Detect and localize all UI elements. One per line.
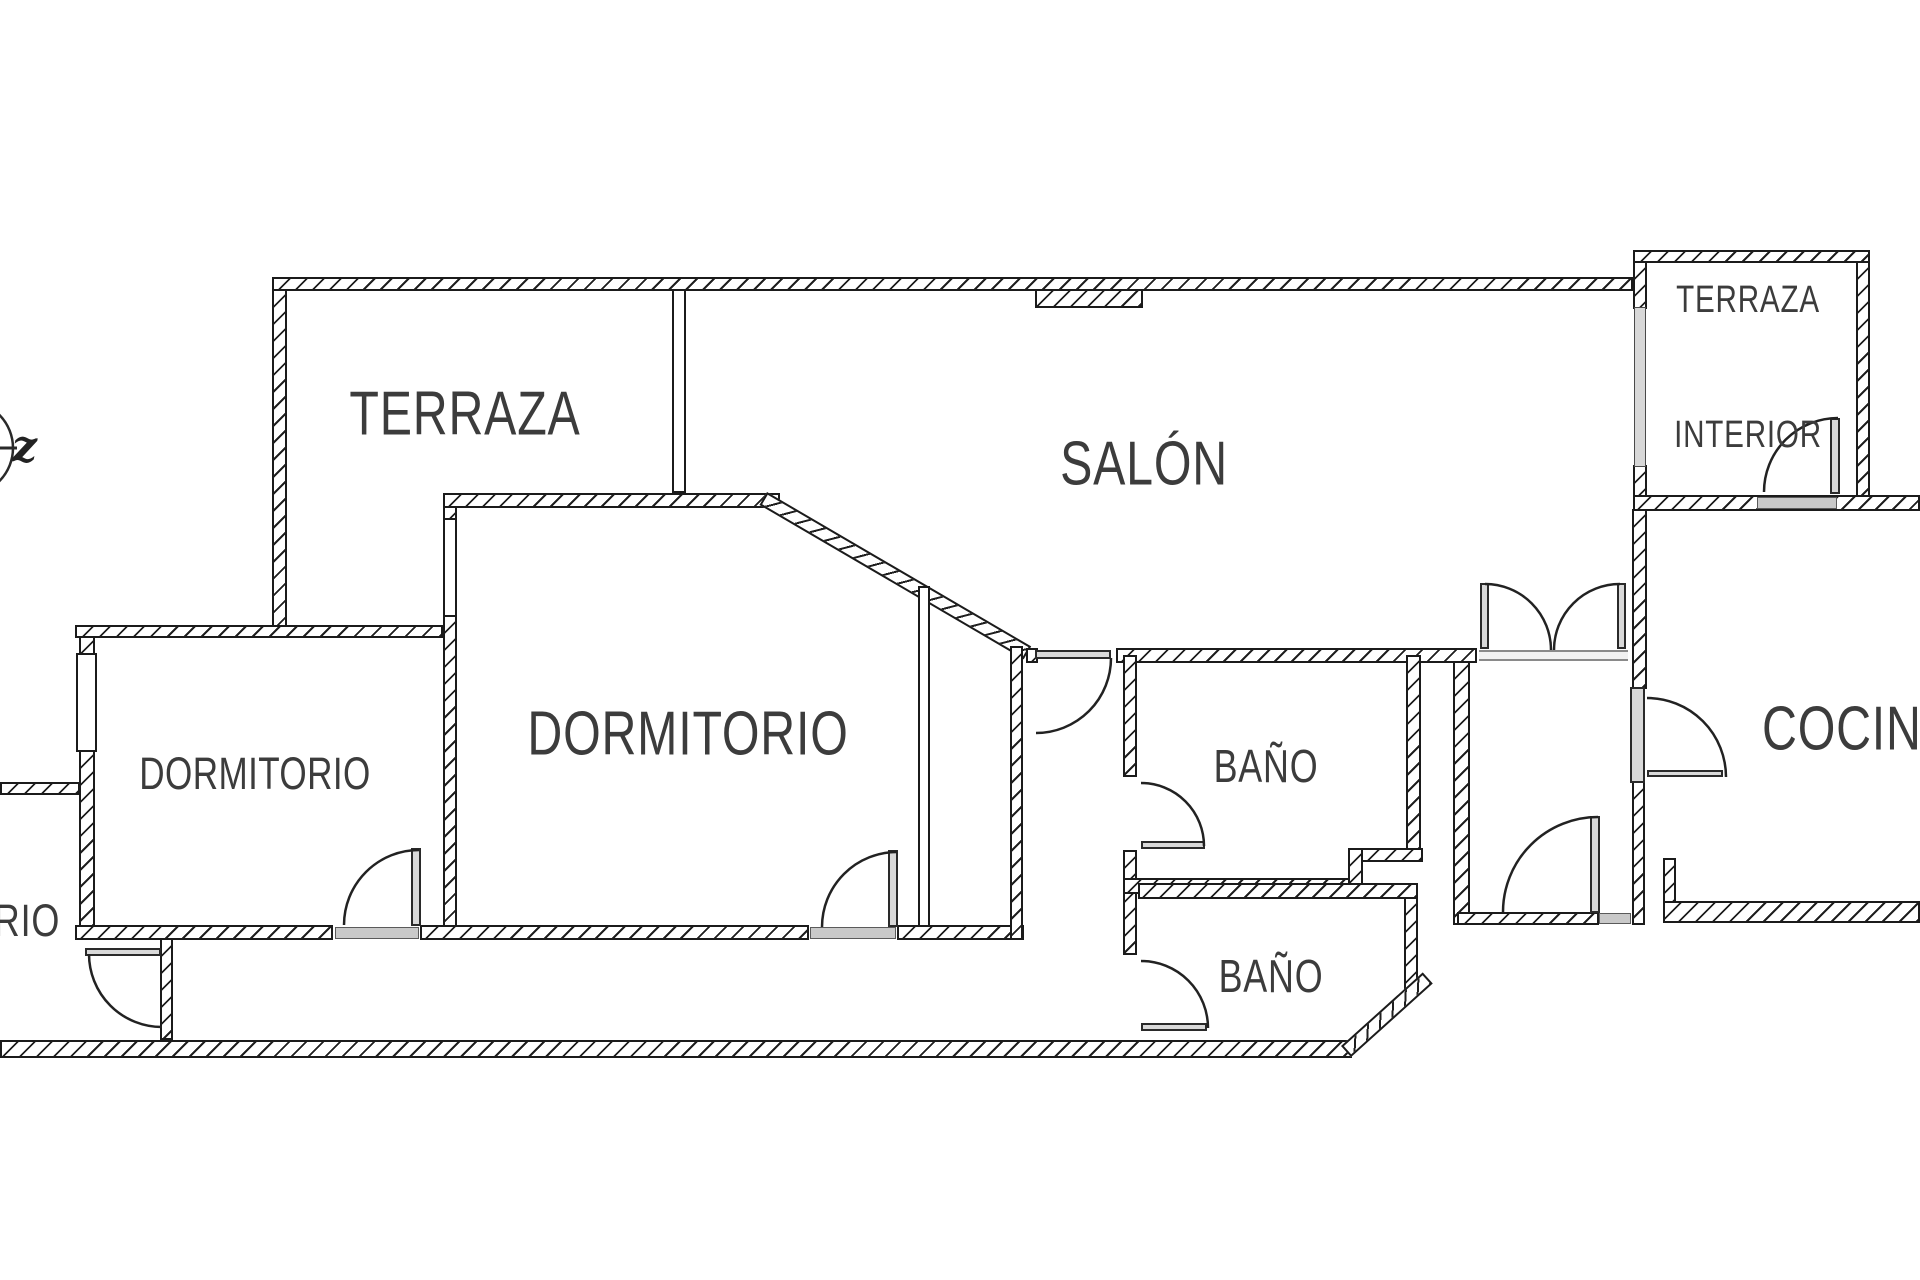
room-label-bano2: BAÑO bbox=[1219, 949, 1324, 1003]
door-arc-dormitorio-principal bbox=[822, 852, 897, 927]
compass-axis-label: z bbox=[12, 422, 38, 473]
door-swing-arcs bbox=[0, 0, 1920, 1280]
door-arc-entrada bbox=[1503, 817, 1598, 912]
door-arc-dormitorio2 bbox=[344, 850, 419, 925]
room-label-terraza-interior: TERRAZA INTERIOR bbox=[1674, 188, 1822, 548]
door-arc-bano2 bbox=[1141, 961, 1208, 1028]
room-label-terraza-interior-line1: TERRAZA bbox=[1674, 278, 1822, 323]
door-arc-cocina bbox=[1647, 698, 1726, 777]
room-label-cocina: COCINA bbox=[1762, 694, 1920, 765]
door-arc-double-left bbox=[1485, 584, 1551, 650]
door-arc-pasillo-izquierdo bbox=[89, 954, 162, 1027]
door-arc-pasillo bbox=[1036, 658, 1111, 733]
room-label-terraza: TERRAZA bbox=[349, 379, 580, 450]
room-label-dormitorio-principal: DORMITORIO bbox=[527, 699, 848, 770]
room-label-dormitorio-recortado: ORIO bbox=[0, 895, 60, 947]
door-arc-bano1 bbox=[1141, 783, 1204, 846]
room-label-salon: SALÓN bbox=[1060, 429, 1228, 500]
room-label-terraza-interior-line2: INTERIOR bbox=[1674, 413, 1822, 458]
floor-plan-canvas: TERRAZA SALÓN TERRAZA INTERIOR COCINA DO… bbox=[0, 0, 1920, 1280]
room-label-bano1: BAÑO bbox=[1214, 739, 1319, 793]
door-arc-double-right bbox=[1554, 584, 1620, 650]
room-label-dormitorio2: DORMITORIO bbox=[139, 748, 370, 800]
